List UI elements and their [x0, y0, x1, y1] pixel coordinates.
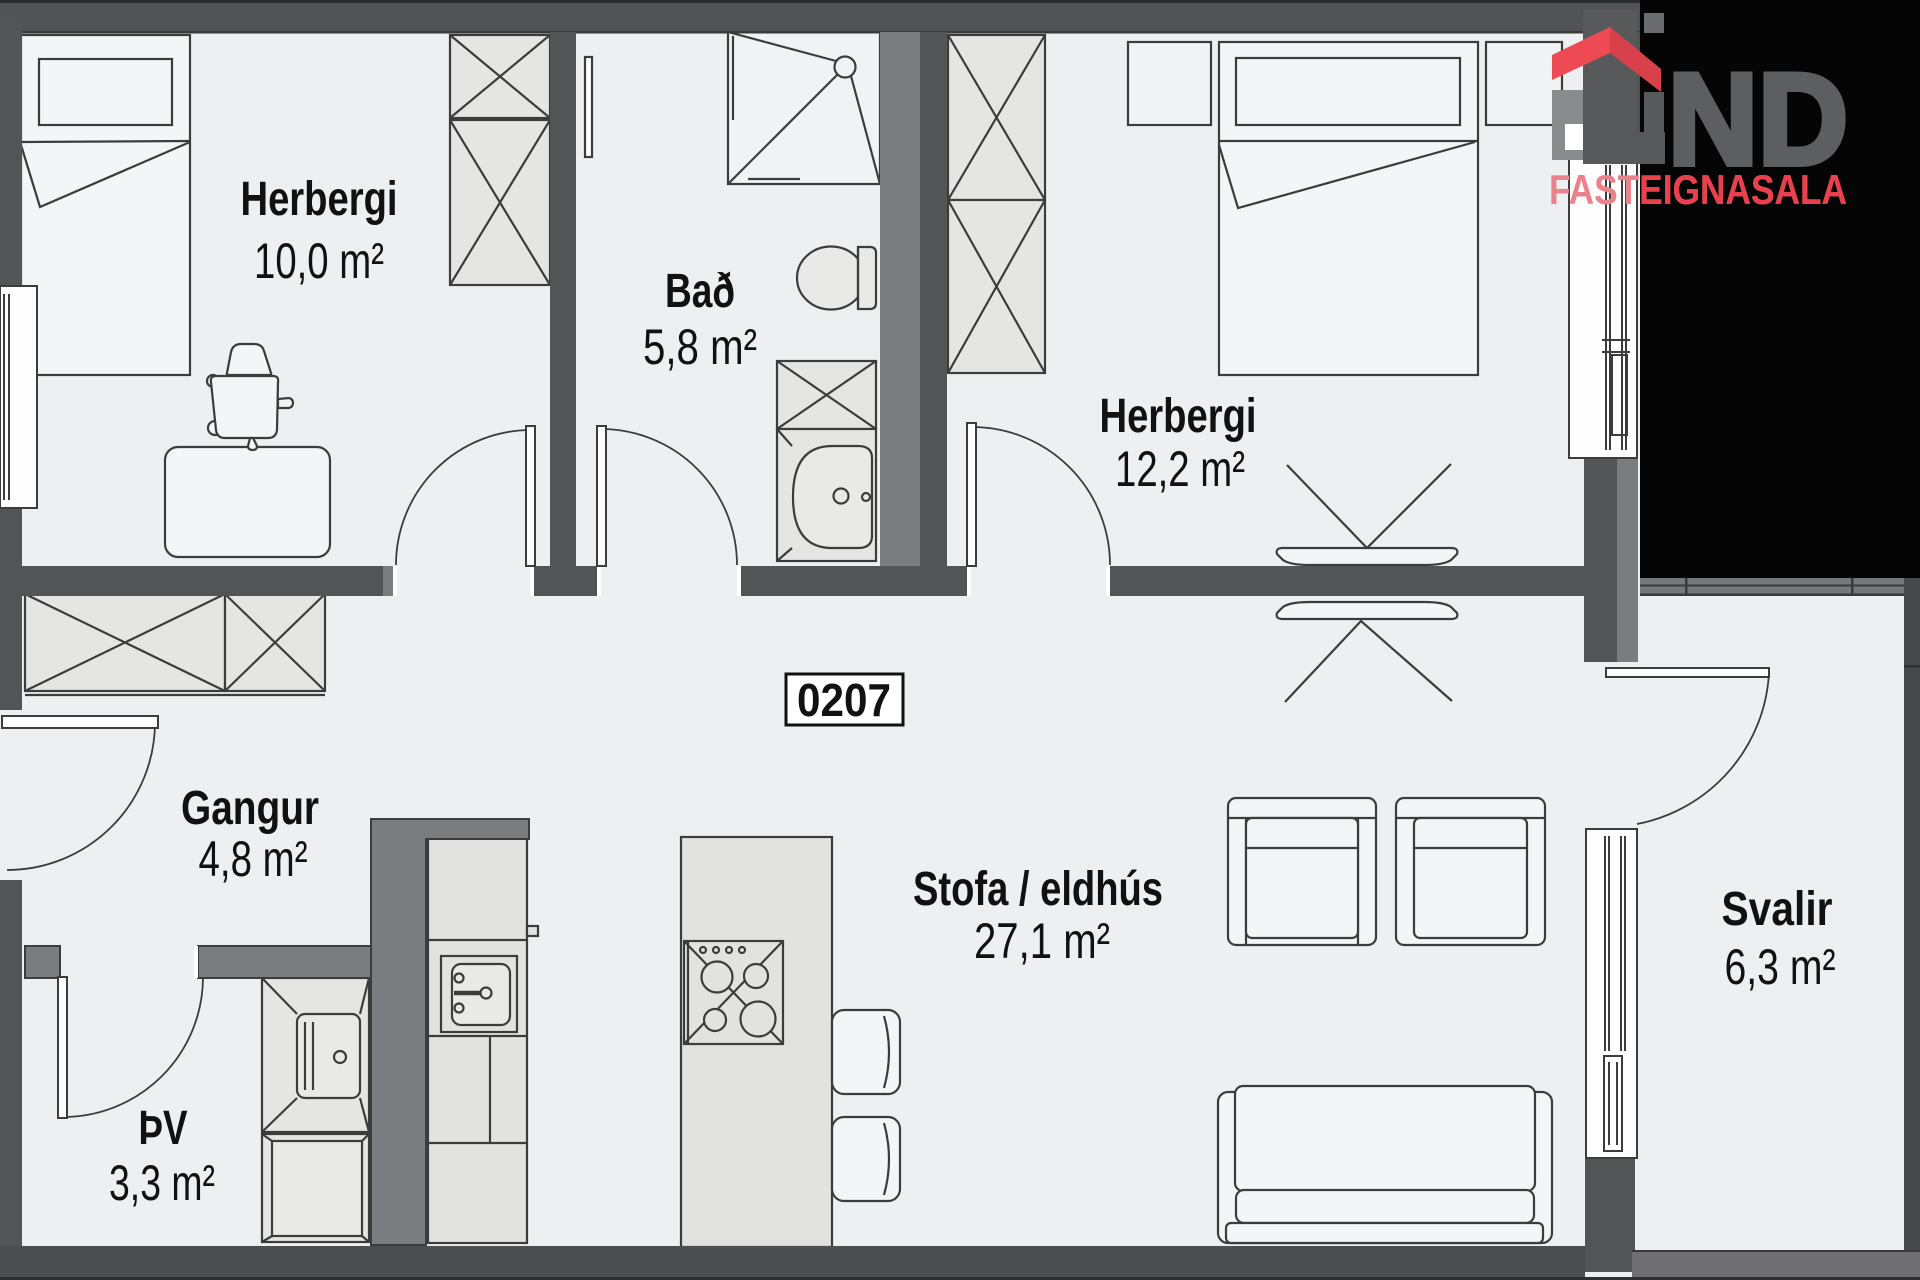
- svg-text:4,8 m²: 4,8 m²: [199, 831, 308, 887]
- svg-text:Herbergi: Herbergi: [241, 173, 398, 226]
- svg-text:0207: 0207: [797, 674, 891, 726]
- svg-text:10,0 m²: 10,0 m²: [254, 233, 384, 289]
- svg-text:Herbergi: Herbergi: [1100, 390, 1257, 443]
- svg-text:3,3 m²: 3,3 m²: [109, 1155, 215, 1211]
- svg-text:12,2 m²: 12,2 m²: [1115, 441, 1245, 497]
- svg-text:Svalir: Svalir: [1722, 883, 1833, 936]
- svg-text:Bað: Bað: [665, 265, 735, 318]
- svg-text:Gangur: Gangur: [181, 782, 319, 835]
- svg-text:6,3 m²: 6,3 m²: [1725, 939, 1836, 995]
- svg-text:ÞV: ÞV: [139, 1102, 188, 1155]
- svg-text:Stofa / eldhús: Stofa / eldhús: [913, 863, 1163, 916]
- svg-text:27,1 m²: 27,1 m²: [974, 913, 1110, 969]
- svg-text:5,8 m²: 5,8 m²: [643, 319, 757, 375]
